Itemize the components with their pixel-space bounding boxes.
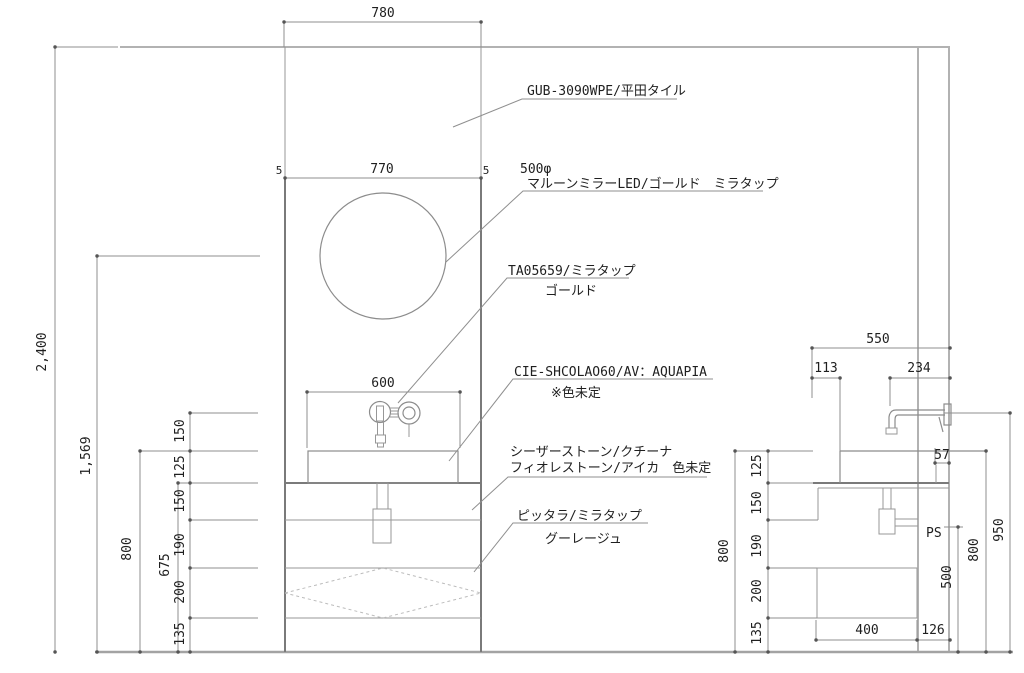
dim-stack-125: 125 [173,455,188,478]
round-mirror [320,193,446,319]
dimension-texts-elevation: 780 770 5 5 600 2,400 1,569 800 675 150 … [35,6,489,646]
dim-stack-150b: 150 [173,489,188,512]
dim-2400-line [55,47,118,652]
leader-lower-panel [474,523,648,572]
label-faucet-color: ゴールド [545,283,597,299]
dim-2400: 2,400 [35,332,50,371]
faucet-handle-outer [398,402,420,424]
label-basin: CIE-SHCOLAO60/AV：AQUAPIA [514,365,707,380]
dim-600: 600 [371,376,394,391]
wall-lines [95,47,1013,652]
label-mirror: マルーンミラーLED/ゴールド ミラタップ [527,176,779,192]
label-mirror-dia: 500φ [520,162,551,177]
drain-trap-section [879,509,895,534]
vanity-elevation-drawing: GUB-3090WPE/平田タイル 500φ マルーンミラーLED/ゴールド ミ… [0,0,1024,673]
dim-113-line [812,378,840,451]
dim-s-stack-200: 200 [750,579,765,602]
dim-stack-190: 190 [173,533,188,556]
faucet-spout-escutcheon [370,402,391,423]
dim-stack-150a: 150 [173,419,188,442]
dim-675: 675 [158,553,173,576]
witness-lines-section [735,451,818,618]
faucet-spout-tube [378,421,384,435]
spout-nozzle [886,428,897,434]
leader-tile [453,99,677,127]
dimension-lines-section [735,348,1010,652]
handle-lever [939,417,943,432]
dim-126: 126 [921,623,944,638]
dim-s-stack-135: 135 [750,621,765,644]
drain-trap [373,509,391,543]
mirror-panel [285,47,481,652]
dim-550: 550 [866,332,889,347]
label-basin-note: ※色未定 [551,385,601,401]
waste-pipe-to-wall [895,519,918,526]
label-tile: GUB-3090WPE/平田タイル [527,84,686,99]
leader-mirror [446,191,763,262]
dimension-lines-elevation [55,22,481,652]
label-ps: PS [926,526,942,541]
dim-234-line [890,378,950,406]
label-lower-panel: ピッタラ/ミラタップ [517,509,642,524]
dim-500: 500 [940,565,955,588]
dim-780-line [284,22,481,47]
vanity-section [813,404,987,618]
cabinet-box-section [817,568,917,618]
dim-800-right: 800 [967,538,982,561]
faucet-front [370,402,421,448]
basin-front [308,451,458,483]
faucet-spout-flare [376,435,386,443]
cad-drawing-sheet: GUB-3090WPE/平田タイル 500φ マルーンミラーLED/ゴールド ミ… [0,0,1024,673]
dim-5-right: 5 [483,164,490,177]
label-counter-1: シーザーストーン/クチーナ [510,445,672,460]
dim-400: 400 [855,623,878,638]
dim-stack-135: 135 [173,622,188,645]
dim-800-section: 800 [717,539,732,562]
dim-780: 780 [371,6,394,21]
faucet-spout-tip [378,443,384,447]
label-counter-2: フィオレストーン/アイカ 色未定 [510,460,711,476]
label-lower-panel-color: グーレージュ [545,532,622,547]
dim-s-stack-190: 190 [750,534,765,557]
leader-counter [472,477,707,510]
drain-pipe [377,483,388,509]
dim-113: 113 [814,361,837,376]
label-faucet: TA05659/ミラタップ [508,264,636,279]
faucet-elbow [377,406,384,421]
dim-57: 57 [934,448,950,463]
dim-s-stack-125: 125 [750,454,765,477]
dim-950: 950 [992,518,1007,541]
witness-lines-left [140,413,258,618]
faucet-handle-inner [403,407,415,419]
diamond-pattern [285,568,481,618]
dim-800-left: 800 [120,537,135,560]
dim-234: 234 [907,361,931,376]
dim-s-stack-150: 150 [750,491,765,514]
vanity-elevation [285,402,481,619]
dim-stack-200: 200 [173,580,188,603]
drain-pipe-section [883,488,891,509]
dim-5-left: 5 [276,164,283,177]
dim-770: 770 [370,162,393,177]
annotations: GUB-3090WPE/平田タイル 500φ マルーンミラーLED/ゴールド ミ… [398,84,942,572]
dim-1569: 1,569 [79,436,94,475]
